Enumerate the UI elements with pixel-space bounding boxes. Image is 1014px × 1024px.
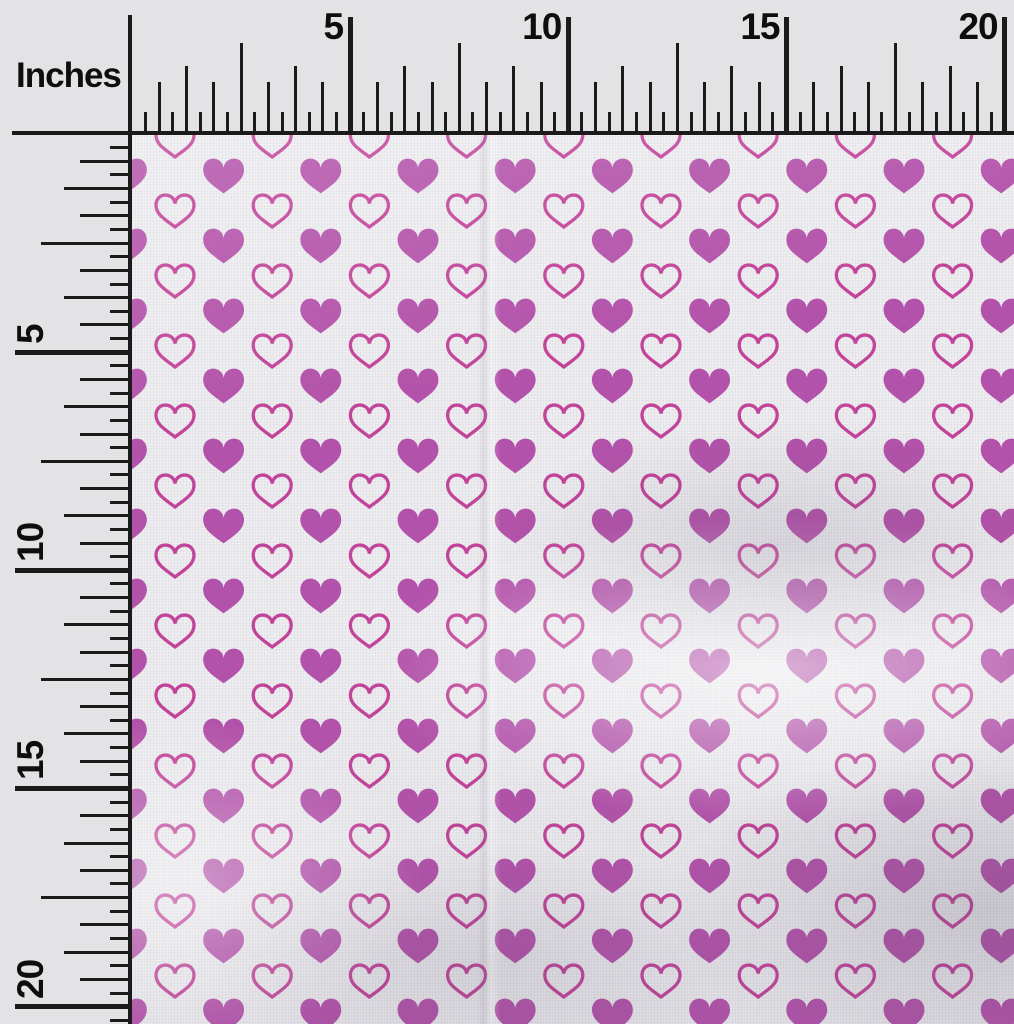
filled-heart xyxy=(592,859,633,894)
filled-heart xyxy=(495,509,536,544)
filled-heart xyxy=(689,509,730,544)
outline-heart xyxy=(448,615,486,647)
filled-heart xyxy=(884,369,925,404)
filled-heart xyxy=(592,719,633,754)
filled-heart xyxy=(300,299,341,334)
outline-heart xyxy=(642,195,680,227)
filled-heart xyxy=(495,299,536,334)
left-ruler-major-tick xyxy=(15,568,132,573)
filled-heart xyxy=(884,579,925,614)
top-ruler-tick xyxy=(676,43,679,134)
filled-heart xyxy=(981,159,1014,194)
hearts-pattern xyxy=(132,134,1014,1024)
left-ruler-tick xyxy=(64,514,132,517)
filled-heart xyxy=(981,649,1014,684)
outline-heart xyxy=(545,265,583,297)
outline-heart xyxy=(642,755,680,787)
left-ruler-tick xyxy=(80,378,132,381)
filled-heart xyxy=(884,159,925,194)
filled-heart xyxy=(786,579,827,614)
filled-heart xyxy=(689,299,730,334)
filled-heart xyxy=(203,159,244,194)
outline-heart xyxy=(350,545,388,577)
filled-heart xyxy=(689,649,730,684)
filled-heart xyxy=(398,159,439,194)
filled-heart xyxy=(398,929,439,964)
filled-heart xyxy=(495,229,536,264)
outline-heart xyxy=(836,685,874,717)
outline-heart xyxy=(156,545,194,577)
outline-heart xyxy=(350,685,388,717)
filled-heart xyxy=(398,509,439,544)
top-ruler-tick xyxy=(703,82,706,134)
filled-heart xyxy=(132,789,147,824)
outline-heart xyxy=(642,134,680,157)
top-ruler-tick xyxy=(321,82,324,134)
outline-heart xyxy=(739,615,777,647)
outline-heart xyxy=(934,895,972,927)
filled-heart xyxy=(300,649,341,684)
outline-heart xyxy=(642,965,680,997)
filled-heart xyxy=(689,929,730,964)
outline-heart xyxy=(253,195,291,227)
outline-heart xyxy=(448,335,486,367)
filled-heart xyxy=(300,929,341,964)
filled-heart xyxy=(203,299,244,334)
outline-heart xyxy=(545,405,583,437)
left-ruler-tick xyxy=(80,433,132,436)
outline-heart xyxy=(156,195,194,227)
filled-heart xyxy=(132,859,147,894)
filled-heart xyxy=(203,229,244,264)
filled-heart xyxy=(398,719,439,754)
outline-heart xyxy=(350,825,388,857)
top-ruler-tick xyxy=(812,82,815,134)
left-ruler-tick xyxy=(64,623,132,626)
fabric-product-photo: 5101520 Inches 5101520 xyxy=(0,0,1014,1024)
filled-heart xyxy=(300,159,341,194)
outline-heart xyxy=(739,755,777,787)
outline-heart xyxy=(739,685,777,717)
outline-heart xyxy=(156,825,194,857)
filled-heart xyxy=(300,789,341,824)
top-ruler-tick xyxy=(158,82,161,134)
top-ruler-major-tick xyxy=(1002,17,1007,134)
left-ruler-tick xyxy=(80,323,132,326)
top-ruler-tick xyxy=(758,82,761,134)
outline-heart xyxy=(836,335,874,367)
top-ruler-major-tick xyxy=(348,17,353,134)
filled-heart xyxy=(495,159,536,194)
outline-heart xyxy=(448,265,486,297)
filled-heart xyxy=(884,929,925,964)
outline-heart xyxy=(253,134,291,157)
top-ruler-tick xyxy=(730,66,733,134)
outline-heart xyxy=(934,475,972,507)
left-ruler-tick xyxy=(80,814,132,817)
outline-heart xyxy=(350,134,388,157)
left-ruler-tick xyxy=(64,951,132,954)
outline-heart xyxy=(642,335,680,367)
outline-heart xyxy=(156,405,194,437)
outline-heart xyxy=(739,265,777,297)
outline-heart xyxy=(739,965,777,997)
outline-heart xyxy=(448,545,486,577)
outline-heart xyxy=(156,265,194,297)
outline-heart xyxy=(156,685,194,717)
outline-heart xyxy=(642,405,680,437)
filled-heart xyxy=(300,369,341,404)
top-ruler: 5101520 xyxy=(0,0,1014,134)
outline-heart xyxy=(642,685,680,717)
filled-heart xyxy=(689,439,730,474)
left-ruler-number: 10 xyxy=(12,472,49,562)
filled-heart xyxy=(203,929,244,964)
filled-heart xyxy=(495,649,536,684)
filled-heart xyxy=(495,719,536,754)
top-ruler-major-tick xyxy=(784,17,789,134)
top-ruler-tick xyxy=(921,82,924,134)
outline-heart xyxy=(836,965,874,997)
filled-heart xyxy=(689,579,730,614)
outline-heart xyxy=(448,965,486,997)
filled-heart xyxy=(398,649,439,684)
filled-heart xyxy=(203,509,244,544)
filled-heart xyxy=(884,299,925,334)
outline-heart xyxy=(545,755,583,787)
filled-heart xyxy=(203,789,244,824)
filled-heart xyxy=(786,439,827,474)
left-ruler-major-tick xyxy=(15,786,132,791)
top-ruler-tick xyxy=(867,82,870,134)
filled-heart xyxy=(981,999,1014,1024)
outline-heart xyxy=(448,475,486,507)
left-ruler-tick xyxy=(41,460,132,463)
top-ruler-number: 5 xyxy=(253,8,343,45)
filled-heart xyxy=(592,579,633,614)
outline-heart xyxy=(545,895,583,927)
outline-heart xyxy=(253,405,291,437)
filled-heart xyxy=(132,159,147,194)
left-ruler-tick xyxy=(80,760,132,763)
outline-heart xyxy=(448,195,486,227)
outline-heart xyxy=(545,195,583,227)
outline-heart xyxy=(934,265,972,297)
outline-heart xyxy=(934,545,972,577)
outline-heart xyxy=(253,615,291,647)
left-ruler-tick xyxy=(80,651,132,654)
left-ruler-number: 5 xyxy=(12,254,49,344)
filled-heart xyxy=(300,579,341,614)
outline-heart xyxy=(642,475,680,507)
filled-heart xyxy=(132,929,147,964)
filled-heart xyxy=(495,859,536,894)
filled-heart xyxy=(398,229,439,264)
top-ruler-tick xyxy=(540,82,543,134)
filled-heart xyxy=(132,439,147,474)
filled-heart xyxy=(884,439,925,474)
top-ruler-tick xyxy=(894,43,897,134)
filled-heart xyxy=(592,369,633,404)
top-ruler-tick xyxy=(512,66,515,134)
left-ruler-tick xyxy=(64,405,132,408)
filled-heart xyxy=(300,229,341,264)
filled-heart xyxy=(981,369,1014,404)
filled-heart xyxy=(398,789,439,824)
filled-heart xyxy=(398,439,439,474)
filled-heart xyxy=(786,999,827,1024)
outline-heart xyxy=(739,825,777,857)
left-ruler-tick xyxy=(80,487,132,490)
outline-heart xyxy=(739,195,777,227)
outline-heart xyxy=(545,335,583,367)
filled-heart xyxy=(981,719,1014,754)
top-ruler-tick xyxy=(240,43,243,134)
filled-heart xyxy=(300,719,341,754)
left-ruler-tick xyxy=(80,542,132,545)
outline-heart xyxy=(836,405,874,437)
left-ruler-tick xyxy=(64,842,132,845)
left-ruler-tick xyxy=(64,296,132,299)
outline-heart xyxy=(350,755,388,787)
outline-heart xyxy=(836,195,874,227)
filled-heart xyxy=(132,719,147,754)
outline-heart xyxy=(448,895,486,927)
left-ruler-number: 20 xyxy=(12,909,49,999)
filled-heart xyxy=(495,929,536,964)
outline-heart xyxy=(545,475,583,507)
filled-heart xyxy=(884,649,925,684)
outline-heart xyxy=(545,825,583,857)
filled-heart xyxy=(495,789,536,824)
outline-heart xyxy=(934,335,972,367)
filled-heart xyxy=(786,229,827,264)
top-ruler-number: 20 xyxy=(908,8,998,45)
filled-heart xyxy=(203,719,244,754)
filled-heart xyxy=(300,509,341,544)
top-ruler-number: 10 xyxy=(471,8,561,45)
filled-heart xyxy=(203,649,244,684)
outline-heart xyxy=(934,965,972,997)
left-ruler-tick xyxy=(80,705,132,708)
filled-heart xyxy=(884,509,925,544)
left-ruler-tick xyxy=(41,896,132,899)
filled-heart xyxy=(981,929,1014,964)
outline-heart xyxy=(642,825,680,857)
filled-heart xyxy=(786,299,827,334)
filled-heart xyxy=(203,859,244,894)
top-ruler-tick xyxy=(649,82,652,134)
filled-heart xyxy=(132,999,147,1024)
filled-heart xyxy=(786,369,827,404)
outline-heart xyxy=(448,755,486,787)
filled-heart xyxy=(398,999,439,1024)
filled-heart xyxy=(592,999,633,1024)
top-ruler-tick xyxy=(376,82,379,134)
outline-heart xyxy=(253,335,291,367)
left-ruler-tick xyxy=(80,160,132,163)
outline-heart xyxy=(350,195,388,227)
outline-heart xyxy=(739,134,777,157)
filled-heart xyxy=(689,789,730,824)
outline-heart xyxy=(350,265,388,297)
outline-heart xyxy=(934,755,972,787)
outline-heart xyxy=(253,895,291,927)
outline-heart xyxy=(253,755,291,787)
top-ruler-major-tick xyxy=(566,17,571,134)
left-ruler-tick xyxy=(80,869,132,872)
outline-heart xyxy=(739,895,777,927)
outline-heart xyxy=(836,265,874,297)
outline-heart xyxy=(253,265,291,297)
filled-heart xyxy=(884,789,925,824)
left-ruler-major-tick xyxy=(15,350,132,355)
outline-heart xyxy=(253,545,291,577)
ruler-unit-label: Inches xyxy=(16,56,121,96)
top-ruler-baseline xyxy=(12,131,1014,135)
filled-heart xyxy=(132,649,147,684)
filled-heart xyxy=(689,159,730,194)
top-ruler-tick xyxy=(185,66,188,134)
outline-heart xyxy=(642,895,680,927)
filled-heart xyxy=(132,509,147,544)
fabric-swatch xyxy=(132,134,1014,1024)
outline-heart xyxy=(836,475,874,507)
outline-heart xyxy=(545,545,583,577)
left-ruler-major-tick xyxy=(15,1004,132,1009)
filled-heart xyxy=(300,439,341,474)
filled-heart xyxy=(495,579,536,614)
outline-heart xyxy=(156,615,194,647)
top-ruler-number: 15 xyxy=(690,8,780,45)
left-ruler-tick xyxy=(80,596,132,599)
outline-heart xyxy=(448,825,486,857)
filled-heart xyxy=(398,299,439,334)
outline-heart xyxy=(836,895,874,927)
outline-heart xyxy=(836,134,874,157)
left-ruler-tick xyxy=(80,978,132,981)
outline-heart xyxy=(545,965,583,997)
outline-heart xyxy=(350,965,388,997)
top-ruler-tick xyxy=(403,66,406,134)
outline-heart xyxy=(253,685,291,717)
left-ruler-tick xyxy=(80,214,132,217)
outline-heart xyxy=(836,615,874,647)
filled-heart xyxy=(884,229,925,264)
outline-heart xyxy=(156,895,194,927)
outline-heart xyxy=(836,825,874,857)
filled-heart xyxy=(495,439,536,474)
filled-heart xyxy=(786,859,827,894)
outline-heart xyxy=(253,965,291,997)
filled-heart xyxy=(786,159,827,194)
top-ruler-tick xyxy=(431,82,434,134)
outline-heart xyxy=(350,895,388,927)
filled-heart xyxy=(398,579,439,614)
left-ruler-baseline xyxy=(128,15,132,1024)
outline-heart xyxy=(739,335,777,367)
outline-heart xyxy=(934,615,972,647)
outline-heart xyxy=(448,685,486,717)
filled-heart xyxy=(592,649,633,684)
filled-heart xyxy=(398,369,439,404)
filled-heart xyxy=(592,789,633,824)
left-ruler-tick xyxy=(80,269,132,272)
outline-heart xyxy=(350,475,388,507)
outline-heart xyxy=(350,335,388,367)
top-ruler-tick xyxy=(294,66,297,134)
outline-heart xyxy=(350,405,388,437)
filled-heart xyxy=(689,999,730,1024)
filled-heart xyxy=(981,579,1014,614)
outline-heart xyxy=(934,685,972,717)
filled-heart xyxy=(786,719,827,754)
filled-heart xyxy=(981,859,1014,894)
left-ruler-number: 15 xyxy=(12,690,49,780)
outline-heart xyxy=(253,475,291,507)
filled-heart xyxy=(689,229,730,264)
outline-heart xyxy=(156,755,194,787)
filled-heart xyxy=(786,929,827,964)
outline-heart xyxy=(253,825,291,857)
filled-heart xyxy=(786,509,827,544)
outline-heart xyxy=(350,615,388,647)
filled-heart xyxy=(203,369,244,404)
outline-heart xyxy=(545,685,583,717)
filled-heart xyxy=(300,999,341,1024)
outline-heart xyxy=(156,475,194,507)
filled-heart xyxy=(884,999,925,1024)
top-ruler-tick xyxy=(621,66,624,134)
top-ruler-tick xyxy=(594,82,597,134)
filled-heart xyxy=(981,509,1014,544)
filled-heart xyxy=(398,859,439,894)
top-ruler-tick xyxy=(212,82,215,134)
top-ruler-tick xyxy=(949,66,952,134)
outline-heart xyxy=(934,405,972,437)
outline-heart xyxy=(156,335,194,367)
outline-heart xyxy=(642,615,680,647)
outline-heart xyxy=(642,265,680,297)
filled-heart xyxy=(132,579,147,614)
filled-heart xyxy=(981,299,1014,334)
filled-heart xyxy=(203,579,244,614)
filled-heart xyxy=(592,299,633,334)
filled-heart xyxy=(495,369,536,404)
filled-heart xyxy=(689,369,730,404)
left-ruler-tick xyxy=(64,187,132,190)
outline-heart xyxy=(934,195,972,227)
outline-heart xyxy=(934,825,972,857)
left-ruler-tick xyxy=(64,732,132,735)
outline-heart xyxy=(156,134,194,157)
filled-heart xyxy=(132,369,147,404)
top-ruler-tick xyxy=(840,66,843,134)
outline-heart xyxy=(739,545,777,577)
top-ruler-tick xyxy=(458,43,461,134)
outline-heart xyxy=(836,755,874,787)
filled-heart xyxy=(884,859,925,894)
outline-heart xyxy=(642,545,680,577)
filled-heart xyxy=(981,789,1014,824)
filled-heart xyxy=(689,719,730,754)
top-ruler-tick xyxy=(976,82,979,134)
outline-heart xyxy=(739,475,777,507)
outline-heart xyxy=(156,965,194,997)
filled-heart xyxy=(592,509,633,544)
outline-heart xyxy=(934,134,972,157)
filled-heart xyxy=(132,229,147,264)
